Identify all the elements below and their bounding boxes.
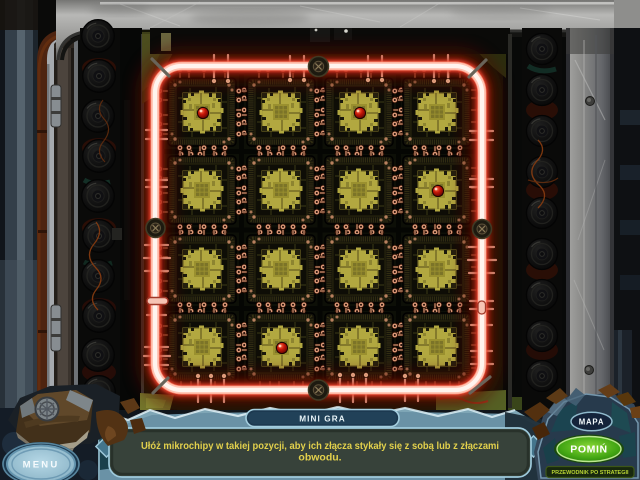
svg-text:obwodu.: obwodu. [298,452,341,464]
svg-text:MINI GRA: MINI GRA [299,415,346,424]
svg-text:POMIŃ: POMIŃ [570,443,607,456]
svg-text:PRZEWODNIK PO STRATEGII: PRZEWODNIK PO STRATEGII [552,470,629,476]
svg-text:MENU: MENU [23,460,60,471]
svg-text:Ułóż mikrochipy w takiej pozyc: Ułóż mikrochipy w takiej pozycji, aby ic… [141,440,499,452]
svg-text:MAPA: MAPA [579,418,605,427]
